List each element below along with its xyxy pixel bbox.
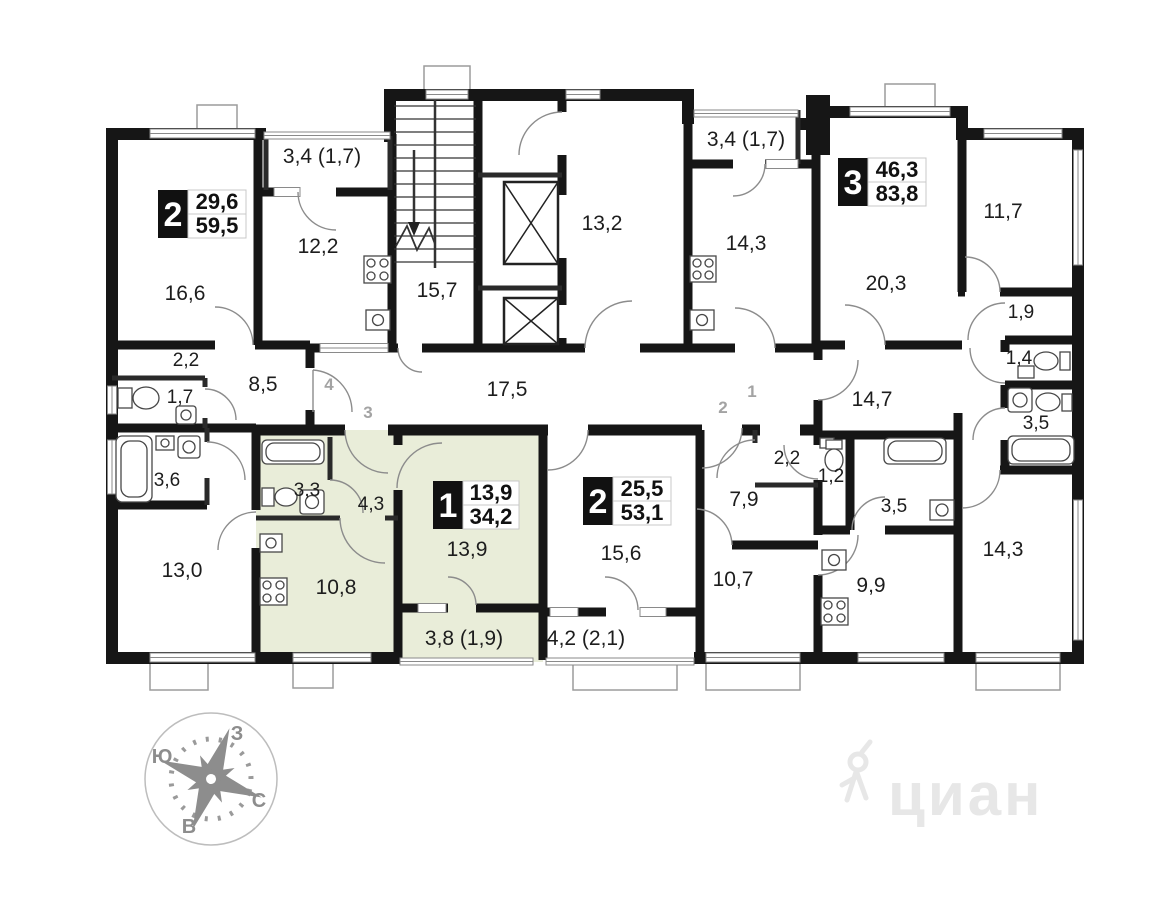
- room-label: 3,5: [1023, 413, 1049, 434]
- badge-total-area: 59,5: [196, 213, 239, 238]
- badge-living-area: 13,9: [470, 480, 513, 505]
- watermark-person-icon: [842, 742, 870, 800]
- elevators: [504, 182, 558, 344]
- room-label: 3,5: [881, 496, 907, 517]
- room-label: 13,2: [582, 212, 623, 235]
- sink-icon: [266, 538, 276, 548]
- apartment-badge-2-left: 2 29,6 59,5: [158, 189, 246, 238]
- compass-east-label: В: [182, 816, 196, 838]
- compass-west-label: З: [231, 723, 244, 745]
- badge-rooms-count: 1: [439, 487, 458, 525]
- room-label: 1,4: [1006, 348, 1033, 369]
- room-label: 8,5: [248, 373, 277, 396]
- compass-north-label: С: [252, 790, 266, 812]
- sink-icon: [373, 315, 384, 326]
- entrance-numbers: 4 3 2 1: [324, 375, 756, 422]
- sink-icon: [829, 555, 840, 566]
- room-label: 2,2: [173, 350, 199, 371]
- room-label: 12,2: [298, 235, 339, 258]
- entrance-number: 4: [324, 375, 334, 394]
- room-label: 15,7: [417, 279, 458, 302]
- room-label: 2,2: [774, 448, 800, 469]
- toilet-icon: [118, 388, 132, 408]
- room-label: 1,7: [167, 387, 193, 408]
- floor-plan-page: 16,6 3,4 (1,7) 12,2 15,7 13,2 3,4 (1,7) …: [0, 0, 1170, 915]
- room-label: 10,7: [713, 568, 754, 591]
- badge-living-area: 46,3: [876, 157, 919, 182]
- room-label: 4,3: [358, 494, 384, 515]
- room-label: 1,9: [1008, 302, 1034, 323]
- room-label: 7,9: [729, 488, 758, 511]
- room-label: 14,3: [983, 538, 1024, 561]
- sink-icon: [697, 315, 708, 326]
- room-label: 20,3: [866, 272, 907, 295]
- room-label: 13,0: [162, 559, 203, 582]
- room-label: 14,3: [726, 232, 767, 255]
- room-label: 14,7: [852, 388, 893, 411]
- apartment-badge-3: 3 46,3 83,8: [838, 157, 926, 206]
- room-label: 16,6: [165, 282, 206, 305]
- badge-rooms-count: 2: [164, 196, 183, 234]
- badge-total-area: 83,8: [876, 181, 919, 206]
- badge-total-area: 34,2: [470, 504, 513, 529]
- apartment-badge-1: 1 13,9 34,2: [433, 480, 519, 529]
- badge-rooms-count: 3: [844, 164, 863, 202]
- room-label: 3,6: [154, 470, 180, 491]
- compass-rose: З Ю С В: [142, 710, 280, 848]
- room-label: 13,9: [447, 538, 488, 561]
- badge-living-area: 25,5: [621, 476, 664, 501]
- room-label: 15,6: [601, 542, 642, 565]
- room-label: 3,8 (1,9): [425, 627, 503, 650]
- compass-south-label: Ю: [152, 746, 173, 768]
- entrance-number: 2: [718, 398, 727, 417]
- apartment-badge-2-center: 2 25,5 53,1: [583, 476, 671, 525]
- room-label: 10,8: [316, 576, 357, 599]
- room-label: 3,4 (1,7): [707, 128, 785, 151]
- badge-total-area: 53,1: [621, 500, 664, 525]
- room-label: 1,2: [818, 466, 844, 487]
- entrance-number: 3: [363, 403, 372, 422]
- toilet-icon: [1060, 352, 1070, 370]
- room-label: 9,9: [856, 574, 885, 597]
- badge-living-area: 29,6: [196, 189, 239, 214]
- watermark: циан: [842, 742, 1043, 828]
- room-label: 3,4 (1,7): [283, 145, 361, 168]
- badge-rooms-count: 2: [589, 483, 608, 521]
- floor-plan: 16,6 3,4 (1,7) 12,2 15,7 13,2 3,4 (1,7) …: [0, 0, 1170, 915]
- room-label: 17,5: [487, 378, 528, 401]
- room-label: 4,2 (2,1): [547, 627, 625, 650]
- room-label: 3,3: [294, 480, 320, 501]
- entrance-number: 1: [747, 382, 756, 401]
- room-label: 11,7: [983, 200, 1022, 223]
- watermark-text: циан: [888, 761, 1043, 828]
- staircase: [394, 100, 476, 268]
